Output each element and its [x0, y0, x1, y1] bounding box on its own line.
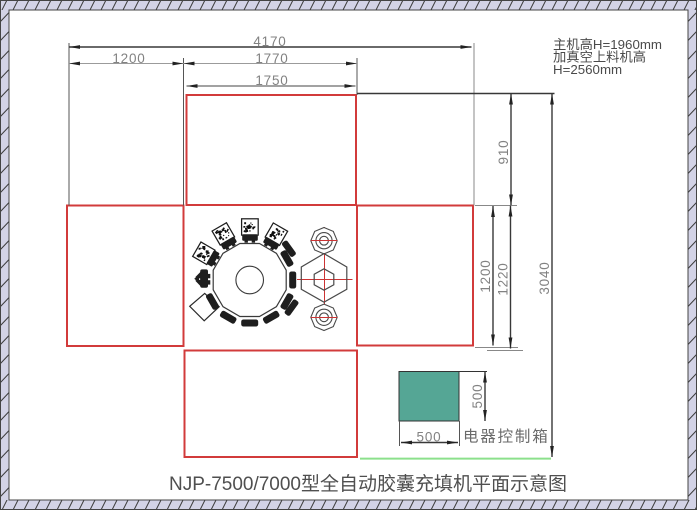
svg-text:1200: 1200 [112, 51, 145, 66]
svg-text:910: 910 [496, 140, 511, 165]
svg-text:4170: 4170 [253, 34, 286, 49]
svg-text:1770: 1770 [255, 51, 288, 66]
svg-text:3040: 3040 [537, 261, 552, 294]
svg-text:500: 500 [470, 384, 485, 409]
svg-text:1750: 1750 [255, 73, 288, 88]
svg-text:1220: 1220 [496, 262, 511, 295]
svg-text:NJP-7500/7000型全自动胶囊充填机平面示意图: NJP-7500/7000型全自动胶囊充填机平面示意图 [169, 473, 567, 495]
svg-text:1200: 1200 [478, 259, 493, 292]
svg-text:电器控制箱: 电器控制箱 [463, 428, 550, 446]
svg-text:500: 500 [417, 430, 442, 445]
svg-text:H=2560mm: H=2560mm [553, 62, 622, 77]
